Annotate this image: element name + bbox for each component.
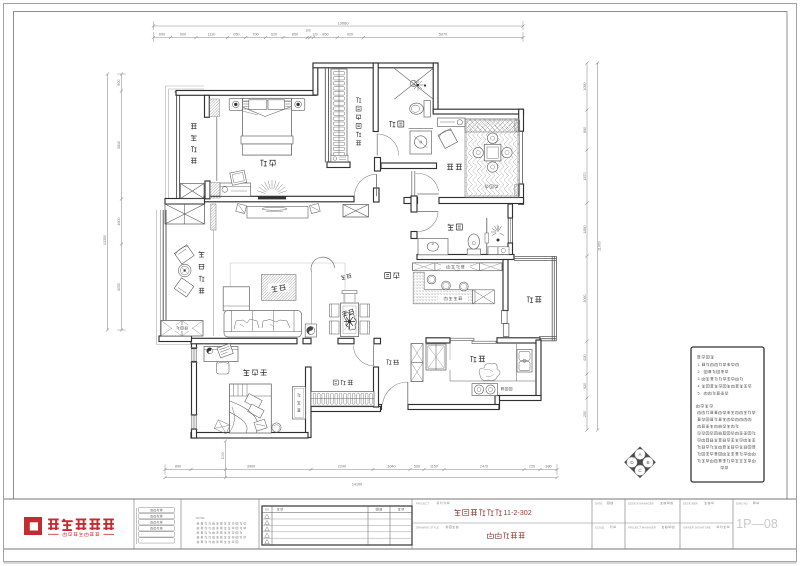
svg-text:1110: 1110 bbox=[208, 33, 216, 37]
svg-text:2.: 2. bbox=[698, 370, 701, 374]
svg-text:600: 600 bbox=[117, 79, 121, 85]
svg-text:DRAWING STYLE: DRAWING STYLE bbox=[416, 526, 439, 530]
svg-text:220: 220 bbox=[529, 465, 535, 469]
svg-text:600: 600 bbox=[159, 33, 165, 37]
svg-text:120: 120 bbox=[312, 33, 318, 37]
svg-text:620: 620 bbox=[271, 33, 277, 37]
svg-text:DWG NO: DWG NO bbox=[736, 502, 749, 506]
svg-text:OWNER SIGNATURE: OWNER SIGNATURE bbox=[683, 526, 711, 530]
svg-text:14160: 14160 bbox=[352, 483, 362, 487]
svg-text:13080: 13080 bbox=[337, 21, 349, 26]
svg-text:900: 900 bbox=[180, 33, 186, 37]
svg-text:PROJECT: PROJECT bbox=[416, 502, 429, 506]
svg-text:1060: 1060 bbox=[583, 82, 587, 90]
svg-text:DESIGN MANAGER: DESIGN MANAGER bbox=[628, 502, 654, 506]
svg-text:2470: 2470 bbox=[480, 465, 488, 469]
svg-text:NO: NO bbox=[265, 508, 269, 512]
svg-text:SCALE: SCALE bbox=[595, 526, 604, 530]
svg-text:-: - bbox=[141, 538, 142, 542]
svg-text:850: 850 bbox=[292, 33, 298, 37]
svg-text:1600: 1600 bbox=[117, 217, 121, 225]
svg-text:500: 500 bbox=[414, 465, 420, 469]
svg-text:3810: 3810 bbox=[117, 141, 121, 149]
svg-text:3.: 3. bbox=[698, 377, 701, 381]
svg-text:11900: 11900 bbox=[598, 241, 602, 251]
svg-text:NOTE:: NOTE: bbox=[196, 516, 205, 520]
svg-text:-: - bbox=[141, 532, 142, 536]
svg-text:11-2-302: 11-2-302 bbox=[504, 508, 532, 517]
svg-text:5070: 5070 bbox=[439, 33, 447, 37]
svg-text:1150: 1150 bbox=[430, 465, 438, 469]
svg-text:3060: 3060 bbox=[583, 294, 587, 302]
svg-text:A: A bbox=[638, 452, 641, 457]
svg-text:920: 920 bbox=[583, 383, 587, 389]
svg-text:100: 100 bbox=[305, 29, 311, 33]
svg-text:3050: 3050 bbox=[117, 283, 121, 291]
svg-text:DESIGNER: DESIGNER bbox=[683, 502, 698, 506]
svg-text:850: 850 bbox=[322, 33, 328, 37]
svg-text:1P—08: 1P—08 bbox=[736, 517, 778, 531]
svg-text:920: 920 bbox=[347, 33, 353, 37]
svg-text:1850: 1850 bbox=[583, 225, 587, 233]
svg-text:630: 630 bbox=[583, 354, 587, 360]
svg-text:1.: 1. bbox=[698, 363, 701, 367]
svg-text:4.: 4. bbox=[698, 384, 701, 388]
svg-text:PROJECT MANAGER: PROJECT MANAGER bbox=[628, 526, 656, 530]
svg-text:B: B bbox=[646, 460, 649, 465]
svg-text:5.: 5. bbox=[698, 392, 701, 396]
svg-text:3900: 3900 bbox=[247, 465, 255, 469]
svg-text:2290: 2290 bbox=[338, 465, 346, 469]
svg-text:1040: 1040 bbox=[387, 465, 395, 469]
svg-text:380: 380 bbox=[545, 465, 551, 469]
svg-text:13350: 13350 bbox=[103, 235, 107, 245]
svg-text:890: 890 bbox=[175, 465, 181, 469]
svg-text:650: 650 bbox=[233, 33, 239, 37]
svg-text:250: 250 bbox=[583, 411, 587, 417]
svg-text:890: 890 bbox=[583, 127, 587, 133]
svg-text:1870: 1870 bbox=[583, 172, 587, 180]
svg-text:1130: 1130 bbox=[221, 452, 225, 459]
svg-text:DATE: DATE bbox=[595, 502, 602, 506]
svg-text:700: 700 bbox=[252, 33, 258, 37]
